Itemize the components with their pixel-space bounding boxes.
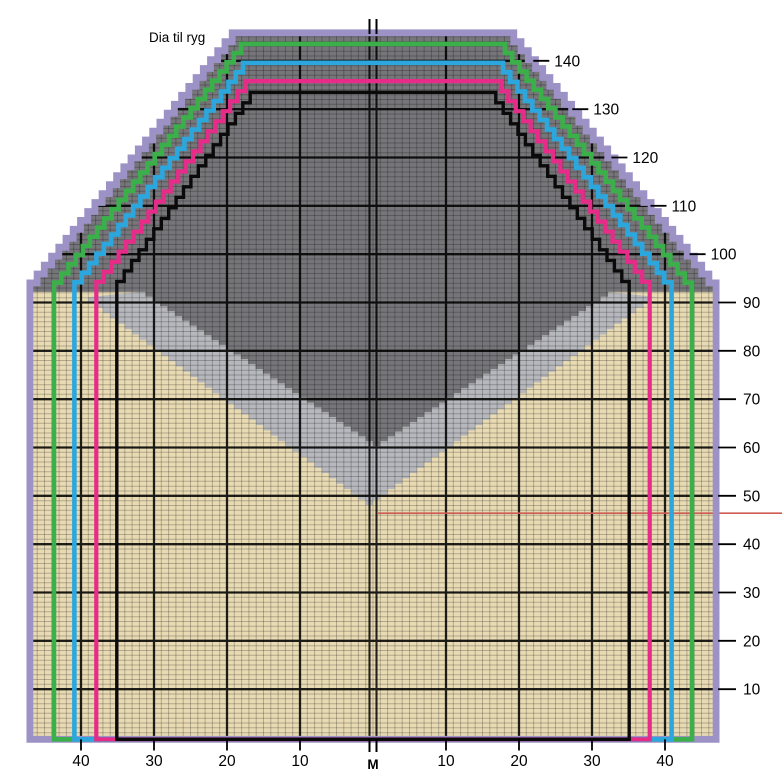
stitch-label-40: 40 (72, 753, 90, 770)
chart-title: Dia til ryg (149, 30, 205, 45)
row-label-30: 30 (743, 585, 761, 602)
chart-canvas: 1401301201101009080706050403020104030201… (0, 0, 782, 774)
row-label-10: 10 (743, 682, 761, 699)
stitch-label-10: 10 (437, 753, 455, 770)
row-label-80: 80 (743, 343, 761, 360)
row-label-140: 140 (554, 53, 580, 70)
row-label-60: 60 (743, 440, 761, 457)
stitch-label-20: 20 (218, 753, 236, 770)
row-label-100: 100 (711, 247, 737, 264)
stitch-label-30: 30 (583, 753, 601, 770)
stitch-label-30: 30 (145, 753, 163, 770)
row-label-50: 50 (743, 488, 761, 505)
knitting-chart-page: 1401301201101009080706050403020104030201… (0, 0, 782, 774)
row-label-130: 130 (593, 102, 619, 119)
stitch-label-20: 20 (510, 753, 528, 770)
row-label-70: 70 (743, 392, 761, 409)
row-label-40: 40 (743, 537, 761, 554)
row-label-110: 110 (672, 198, 697, 215)
stitch-label-M: M (367, 757, 378, 772)
row-label-120: 120 (632, 150, 658, 167)
row-label-20: 20 (743, 633, 761, 650)
row-label-90: 90 (743, 295, 761, 312)
stitch-label-40: 40 (656, 753, 674, 770)
stitch-label-10: 10 (291, 753, 309, 770)
